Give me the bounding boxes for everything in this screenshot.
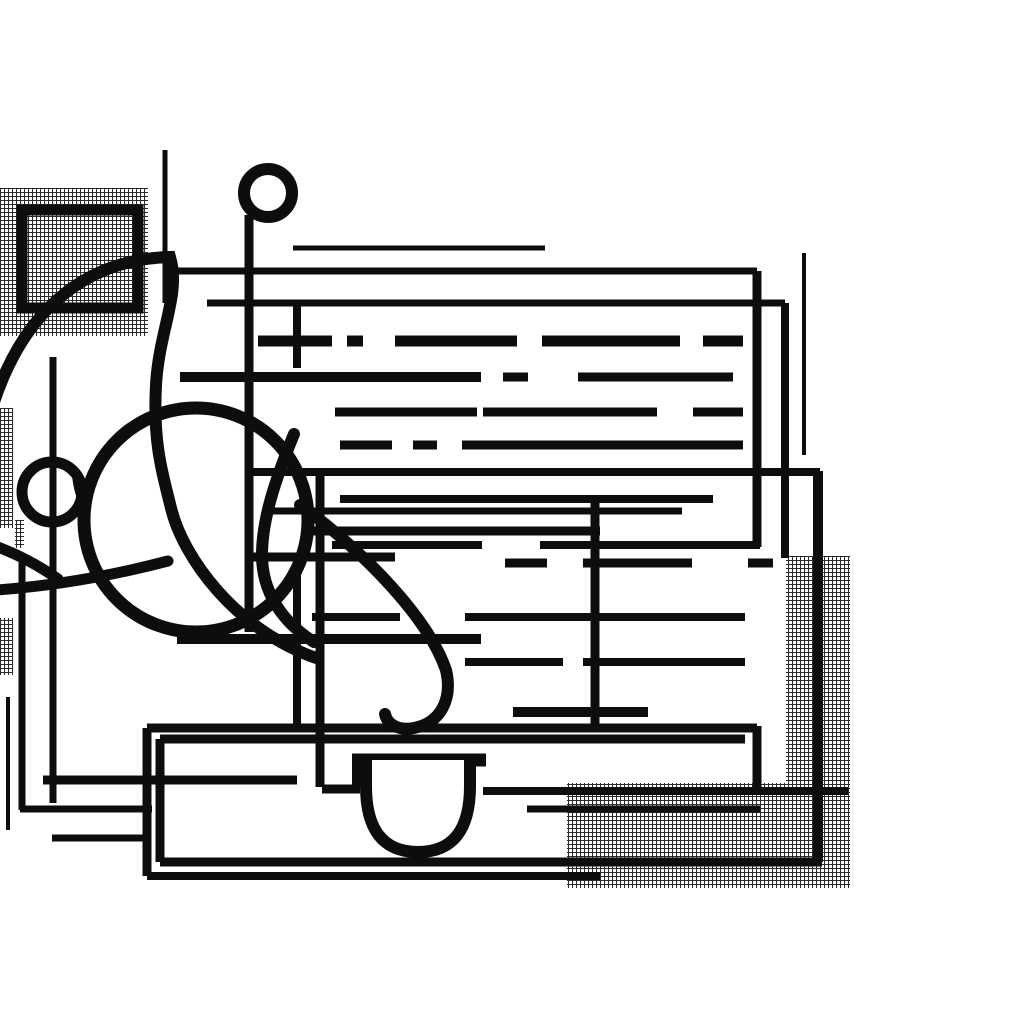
hatch-left-sliver-lower	[0, 618, 13, 675]
hatch-left-sliver-upper	[0, 408, 13, 528]
hatch-micro-glyphs	[15, 520, 24, 548]
canvas-root	[0, 0, 1024, 1024]
abstract-composition	[0, 0, 1024, 1024]
cup-bowl	[366, 760, 470, 852]
